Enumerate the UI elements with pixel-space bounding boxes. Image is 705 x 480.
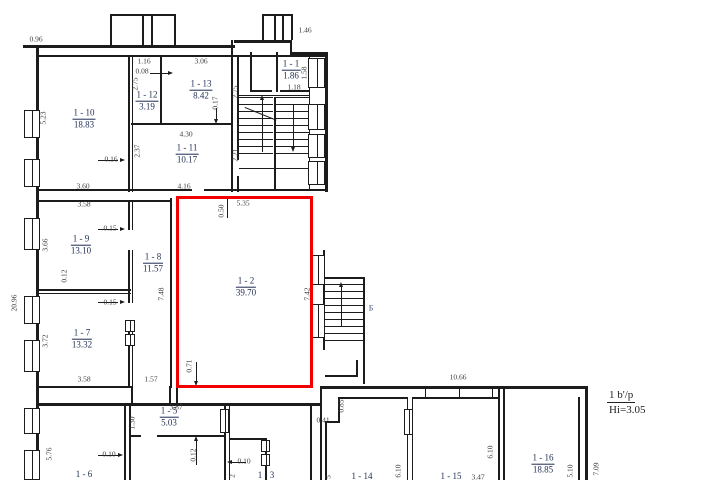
dimension-label: 1.57 xyxy=(144,375,157,384)
wall xyxy=(170,198,172,388)
wall xyxy=(578,397,580,480)
room-label-1-14: 1 - 14 xyxy=(351,471,374,480)
room-label-1-6: 1 - 6 xyxy=(75,469,94,480)
dimension-label: 2.75 xyxy=(131,77,140,90)
wall xyxy=(160,55,162,125)
dimension-label: 0.96 xyxy=(29,35,42,44)
wall xyxy=(498,386,500,480)
stair-arrow-line xyxy=(262,100,263,152)
dimension-label: 0.16 xyxy=(104,155,117,164)
dimension-label: 2.75 xyxy=(231,85,240,98)
stair-tread xyxy=(325,284,363,285)
stair-tread xyxy=(325,305,363,306)
dimension-label: 7.48 xyxy=(157,287,166,300)
dimension-label: 7.09 xyxy=(592,462,601,475)
room-label-1-5: 1 - 55.03 xyxy=(160,406,179,429)
chimney-wall xyxy=(262,14,293,16)
dimension-label: 3.06 xyxy=(194,57,207,66)
stair-wall xyxy=(356,360,358,376)
dimension-label: 1.46 xyxy=(298,26,311,35)
wall xyxy=(132,200,134,230)
wall xyxy=(585,386,588,480)
dim-tick xyxy=(459,388,460,397)
stair-tread xyxy=(325,312,363,313)
wall xyxy=(250,52,252,92)
window-symbol xyxy=(308,104,325,130)
wall xyxy=(176,388,178,403)
dimension-label: 0.12 xyxy=(189,448,198,461)
wall xyxy=(128,323,130,386)
dimension-label: 6.10 xyxy=(486,445,495,458)
window-symbol xyxy=(24,340,40,372)
chimney-wall xyxy=(291,14,293,40)
wall xyxy=(131,435,141,437)
stair-tread xyxy=(325,298,363,299)
chimney-wall xyxy=(110,14,112,45)
dimension-label: 3.47 xyxy=(471,473,484,480)
window-symbol xyxy=(24,408,40,434)
dimension-label: 1.58 xyxy=(300,66,309,79)
window-symbol xyxy=(311,255,325,285)
room-label-1-13: 1 - 138.42 xyxy=(190,79,213,102)
stair-tread xyxy=(239,132,273,133)
dimension-label: 0.50 xyxy=(217,204,226,217)
stair-tread xyxy=(239,139,273,140)
dim-arrow xyxy=(194,436,198,441)
room-label-1-16: 1 - 1618.85 xyxy=(532,453,555,476)
dim-arrow xyxy=(120,227,125,231)
room-label-1-11: 1 - 1110.17 xyxy=(176,143,199,166)
wall xyxy=(320,386,322,480)
wall xyxy=(325,421,327,480)
room-label-1-8: 1 - 811.57 xyxy=(143,252,163,275)
room-label-1-10: 1 - 1018.83 xyxy=(73,108,96,131)
dim-arrow xyxy=(120,158,125,162)
stair-wall xyxy=(363,277,365,384)
stair-tread xyxy=(276,97,310,98)
dimension-label: 5 xyxy=(324,475,333,479)
dimension-label: 6.10 xyxy=(394,464,403,477)
stair-arrow-line xyxy=(341,287,342,327)
dimension-label: 0.08 xyxy=(135,67,148,76)
wall xyxy=(132,323,134,386)
wall xyxy=(39,293,131,295)
dim-tick xyxy=(425,388,426,397)
dimension-label: 5.23 xyxy=(39,111,48,124)
stair-down-arrow xyxy=(291,147,295,152)
wall xyxy=(128,55,130,192)
stair-tread xyxy=(239,146,273,147)
window-symbol xyxy=(24,159,40,187)
dim-arrow xyxy=(168,71,173,75)
wall xyxy=(413,397,498,399)
wall xyxy=(39,55,327,57)
floor-note-height: Hi=3.05 xyxy=(607,403,647,416)
wall xyxy=(276,52,278,92)
door-jamb xyxy=(125,320,135,332)
stair-wall xyxy=(325,277,365,279)
dimension-label: 5.35 xyxy=(236,199,249,208)
stair-tread xyxy=(239,104,273,105)
wall xyxy=(310,403,312,480)
stair-tread xyxy=(239,118,273,119)
dim-arrow xyxy=(120,300,125,304)
wall xyxy=(39,289,131,291)
dimension-label: 3.58 xyxy=(77,375,90,384)
wall xyxy=(321,386,587,389)
dimension-label: 10.66 xyxy=(450,373,467,382)
dim-arrow xyxy=(214,119,218,124)
stair-tread xyxy=(325,291,363,292)
wall xyxy=(131,200,171,202)
window-symbol xyxy=(220,409,229,433)
dim-arrow xyxy=(227,460,232,464)
wall xyxy=(234,40,292,43)
door-jamb xyxy=(125,334,135,346)
chimney-wall xyxy=(262,14,264,40)
dimension-label: 3.60 xyxy=(76,182,89,191)
stair-up-arrow xyxy=(339,282,343,287)
stair-up-arrow xyxy=(260,95,264,100)
window-symbol xyxy=(308,161,325,185)
dimension-label: 3.58 xyxy=(77,200,90,209)
window-symbol xyxy=(404,409,413,435)
stair-tread xyxy=(239,97,273,98)
room-label-1-15: 1 - 15 xyxy=(440,471,463,480)
wall xyxy=(23,45,235,48)
window-symbol xyxy=(24,450,40,480)
dimension-label: 1.18 xyxy=(287,83,300,92)
stair-tread xyxy=(325,326,363,327)
chimney-wall xyxy=(142,16,144,45)
wall xyxy=(124,405,126,480)
dimension-label: 0.10 xyxy=(237,457,250,466)
dimension-label: 20.96 xyxy=(10,295,19,312)
wall xyxy=(338,397,408,399)
dim-arrow-line xyxy=(150,73,168,74)
floor-note: 1 b'/p Hi=3.05 xyxy=(607,389,647,416)
window-symbol xyxy=(311,304,325,338)
dim-arrow xyxy=(194,381,198,386)
stair-tread xyxy=(325,333,363,334)
stair-tread xyxy=(239,125,273,126)
window-symbol xyxy=(308,58,325,88)
room-label-1-12: 1 - 123.19 xyxy=(136,90,159,113)
dimension-label: 0.12 xyxy=(60,269,69,282)
window-symbol xyxy=(308,134,325,158)
stairwell-letter: Б xyxy=(369,304,374,313)
floor-note-top: 1 b'/p xyxy=(607,389,635,403)
stair-tread xyxy=(325,340,363,341)
wall xyxy=(237,55,239,160)
stair-tread xyxy=(276,153,310,154)
dimension-label: 0.71 xyxy=(185,359,194,372)
room-label-1-2: 1 - 239.70 xyxy=(236,276,256,299)
wall xyxy=(132,250,134,303)
dimension-label: 3.66 xyxy=(41,238,50,251)
room-label-1-3: 1 - 3 xyxy=(257,470,276,480)
chimney-wall xyxy=(282,16,284,40)
dimension-label: 1.16 xyxy=(137,57,150,66)
dimension-label: 5.76 xyxy=(45,447,54,460)
window-symbol xyxy=(24,218,40,250)
dim-tick xyxy=(492,388,493,397)
room-label-1-1: 1 - 11.86 xyxy=(282,59,301,82)
stair-wall xyxy=(325,375,358,377)
chimney-wall xyxy=(174,14,176,45)
stair-tread xyxy=(325,319,363,320)
dimension-label: 2 xyxy=(228,474,237,478)
wall xyxy=(39,386,133,388)
floor-plan: Б 1 b'/p Hi=3.05 1 - 1018.831 - 123.191 … xyxy=(0,0,705,480)
stair-tread xyxy=(239,153,273,154)
chimney-wall xyxy=(274,16,276,40)
dimension-label: 4.30 xyxy=(179,130,192,139)
dimension-label: 5.10 xyxy=(566,464,575,477)
dimension-label: 7.42 xyxy=(303,287,312,300)
dimension-label: 4.16 xyxy=(177,182,190,191)
wall xyxy=(128,200,130,230)
dimension-label: 0.41 xyxy=(316,416,329,425)
stair-stringer xyxy=(274,97,276,190)
stair-landing-line xyxy=(239,168,310,169)
wall xyxy=(250,90,272,92)
dimension-label: 0.10 xyxy=(102,450,115,459)
dimension-label: 2.37 xyxy=(133,144,142,157)
dim-arrow xyxy=(118,453,123,457)
dimension-label: 3.72 xyxy=(41,334,50,347)
wall xyxy=(239,95,310,96)
wall xyxy=(128,250,130,303)
door-jamb xyxy=(261,440,270,452)
window-symbol xyxy=(24,296,40,324)
dimension-label: 0.15 xyxy=(103,298,116,307)
wall xyxy=(231,40,233,192)
wall xyxy=(157,435,225,437)
dimension-label: 0.85 xyxy=(337,399,346,412)
room-label-1-9: 1 - 913.10 xyxy=(71,234,91,257)
room-label-1-7: 1 - 713.32 xyxy=(72,328,92,351)
chimney-wall xyxy=(151,16,153,45)
stair-arrow-line xyxy=(293,104,294,148)
wall xyxy=(325,52,328,192)
wall xyxy=(39,189,192,191)
dimension-label: 1.30 xyxy=(128,416,137,429)
dimension-label: 0.15 xyxy=(103,224,116,233)
wall xyxy=(503,386,505,480)
dimension-label: 2.21 xyxy=(231,148,240,161)
door-jamb xyxy=(261,454,270,466)
